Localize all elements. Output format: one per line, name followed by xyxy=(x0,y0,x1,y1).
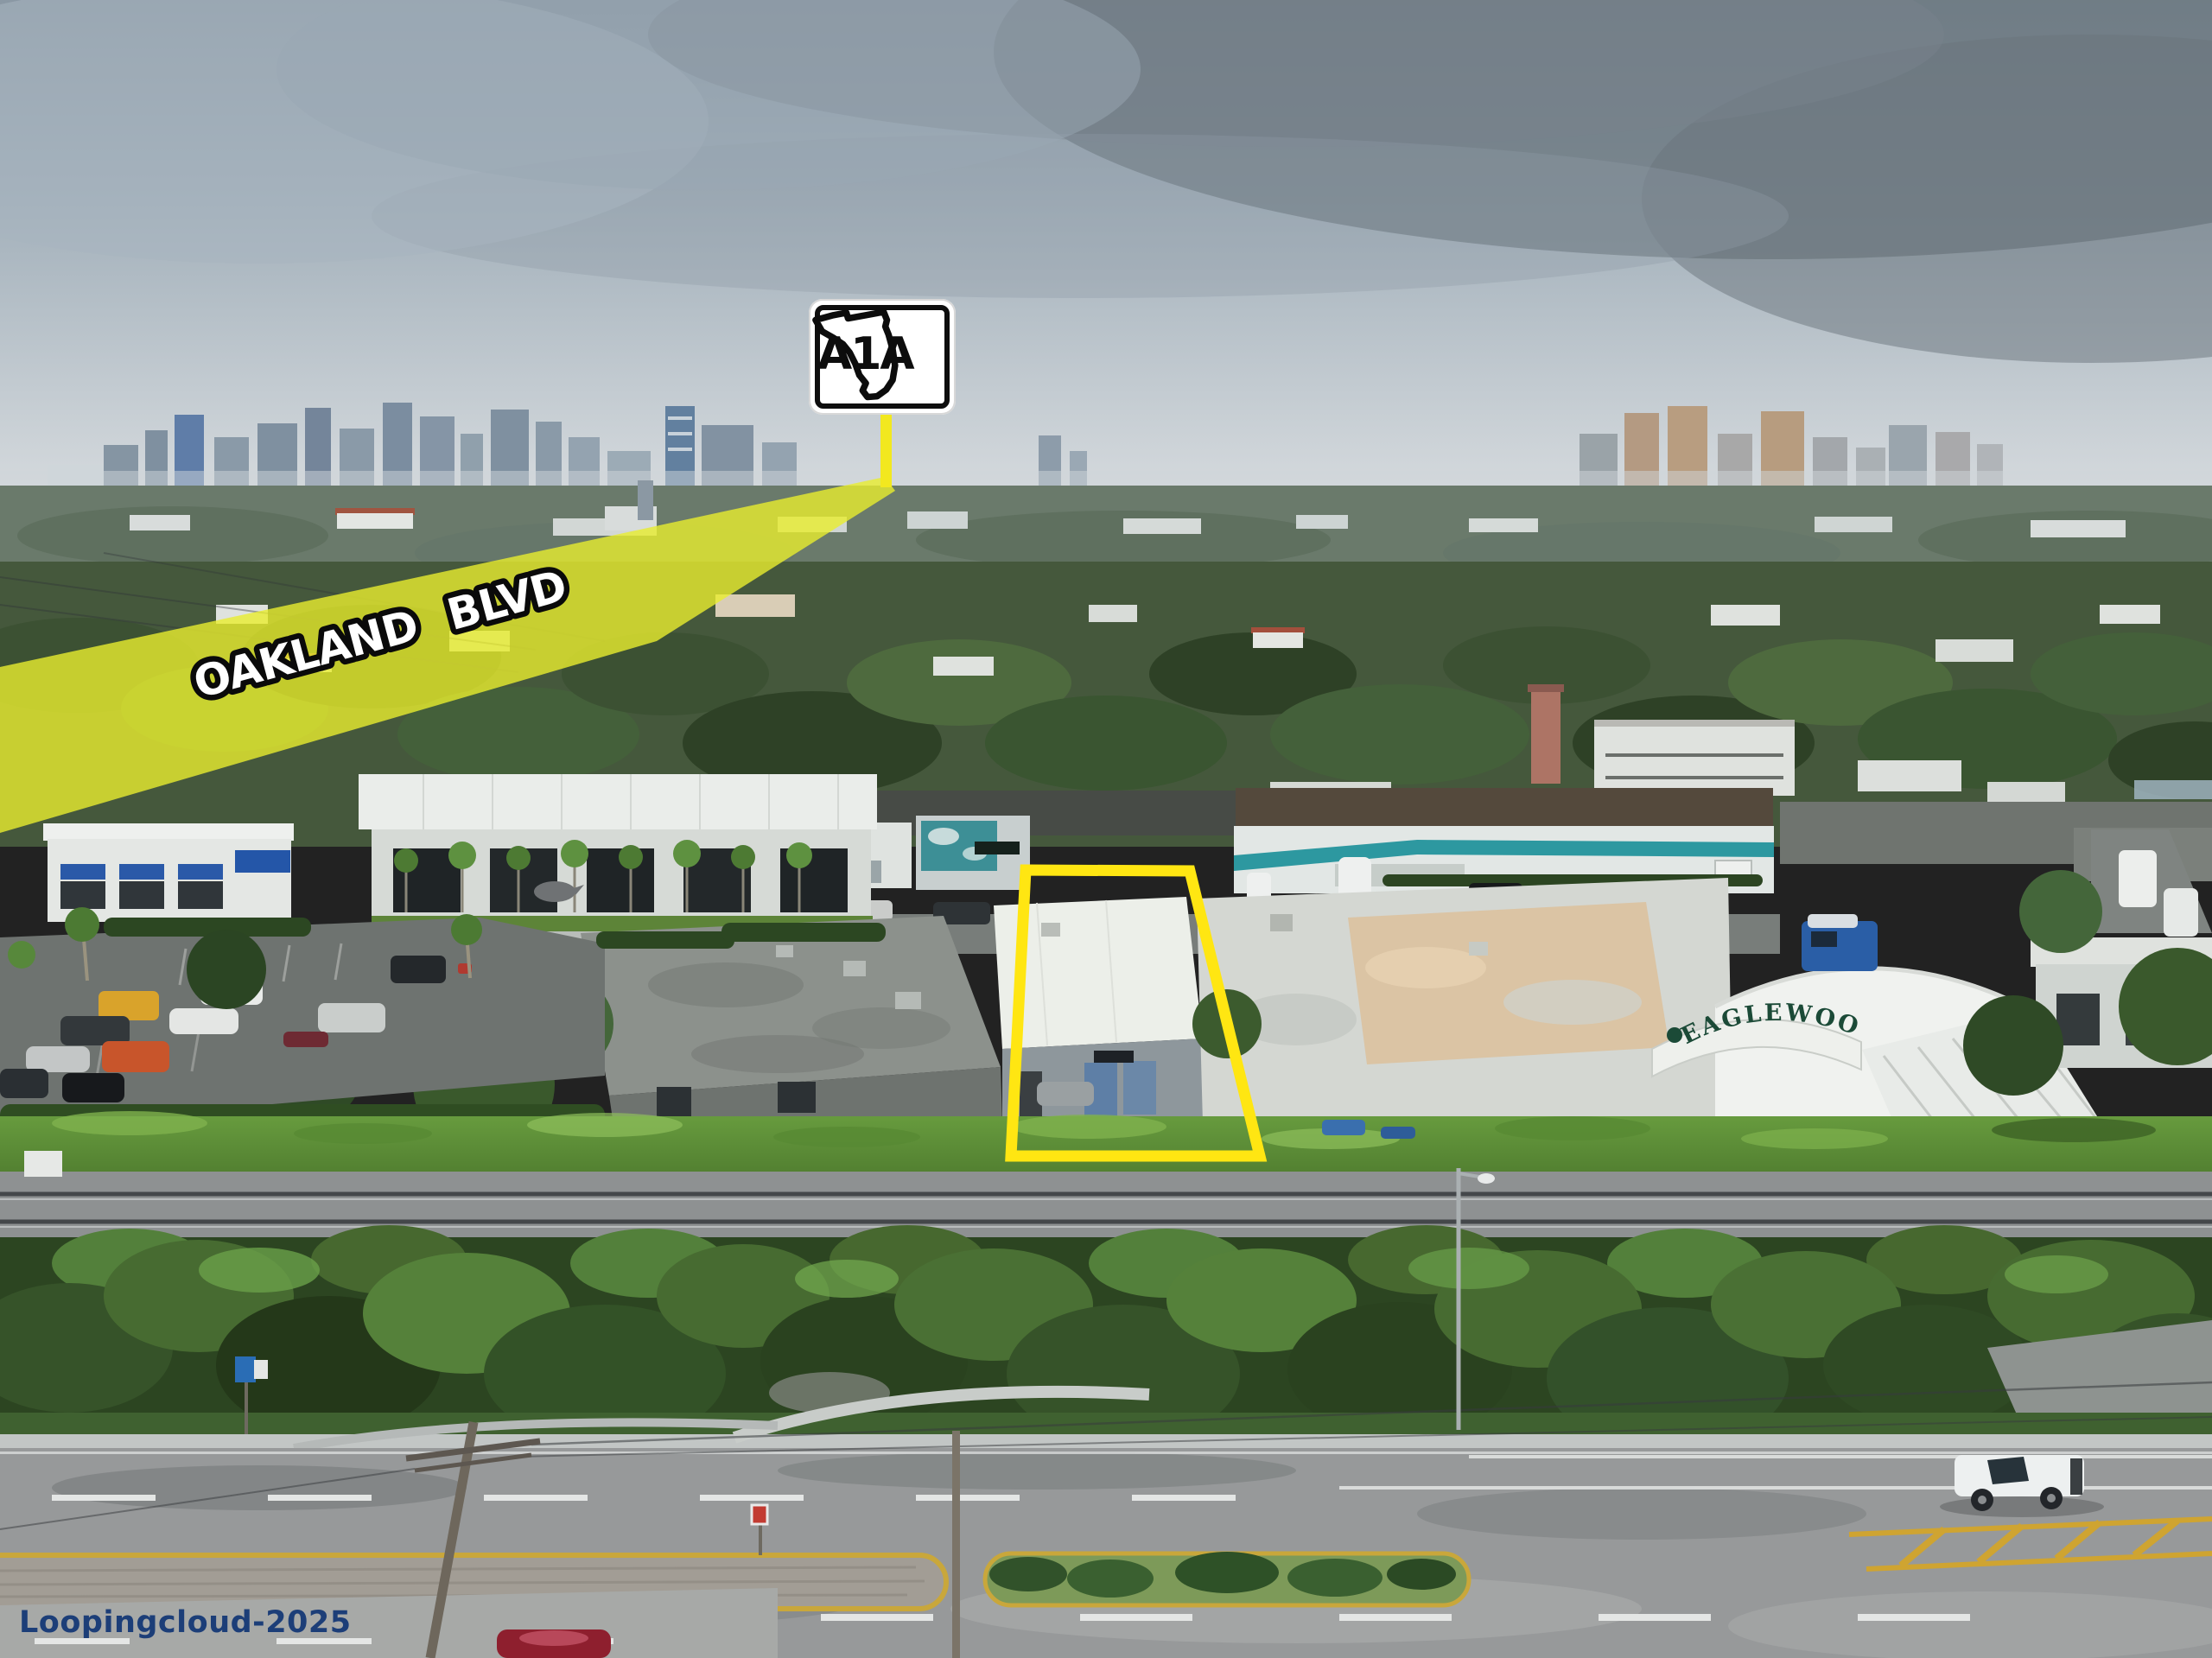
roadside-tree-band xyxy=(0,1225,2212,1452)
blue-bay-door xyxy=(1123,1061,1156,1115)
white-warehouse xyxy=(359,774,881,943)
building-sign xyxy=(1094,1051,1134,1063)
brick-chimney xyxy=(1531,687,1560,784)
a1a-route-shield: A1A xyxy=(809,299,956,415)
median-sign xyxy=(752,1505,767,1524)
blue-semi-truck xyxy=(1802,914,1878,971)
sky xyxy=(0,0,2212,518)
white-pickup-truck xyxy=(1940,1455,2104,1517)
subject-property-building xyxy=(994,897,1203,1132)
storefront-sign xyxy=(975,842,1020,854)
route-shield-label: A1A xyxy=(817,328,913,380)
parked-car xyxy=(1037,1082,1094,1106)
patched-roof-warehouse xyxy=(1197,878,1732,1123)
bush-median xyxy=(985,1552,1469,1605)
trackside-shed xyxy=(24,1151,62,1177)
watermark: Loopingcloud-2025 xyxy=(19,1605,352,1640)
scene-art xyxy=(0,0,2212,1658)
blue-tarp xyxy=(1322,1120,1365,1135)
red-car xyxy=(497,1629,611,1658)
aerial-photo: OAKLAND BLVD EAGLEWOOD A1A Loopingcloud-… xyxy=(0,0,2212,1658)
blue-banner-sign xyxy=(235,850,290,873)
utility-pole xyxy=(952,1431,960,1658)
eagle-logo-icon xyxy=(1667,1027,1682,1043)
